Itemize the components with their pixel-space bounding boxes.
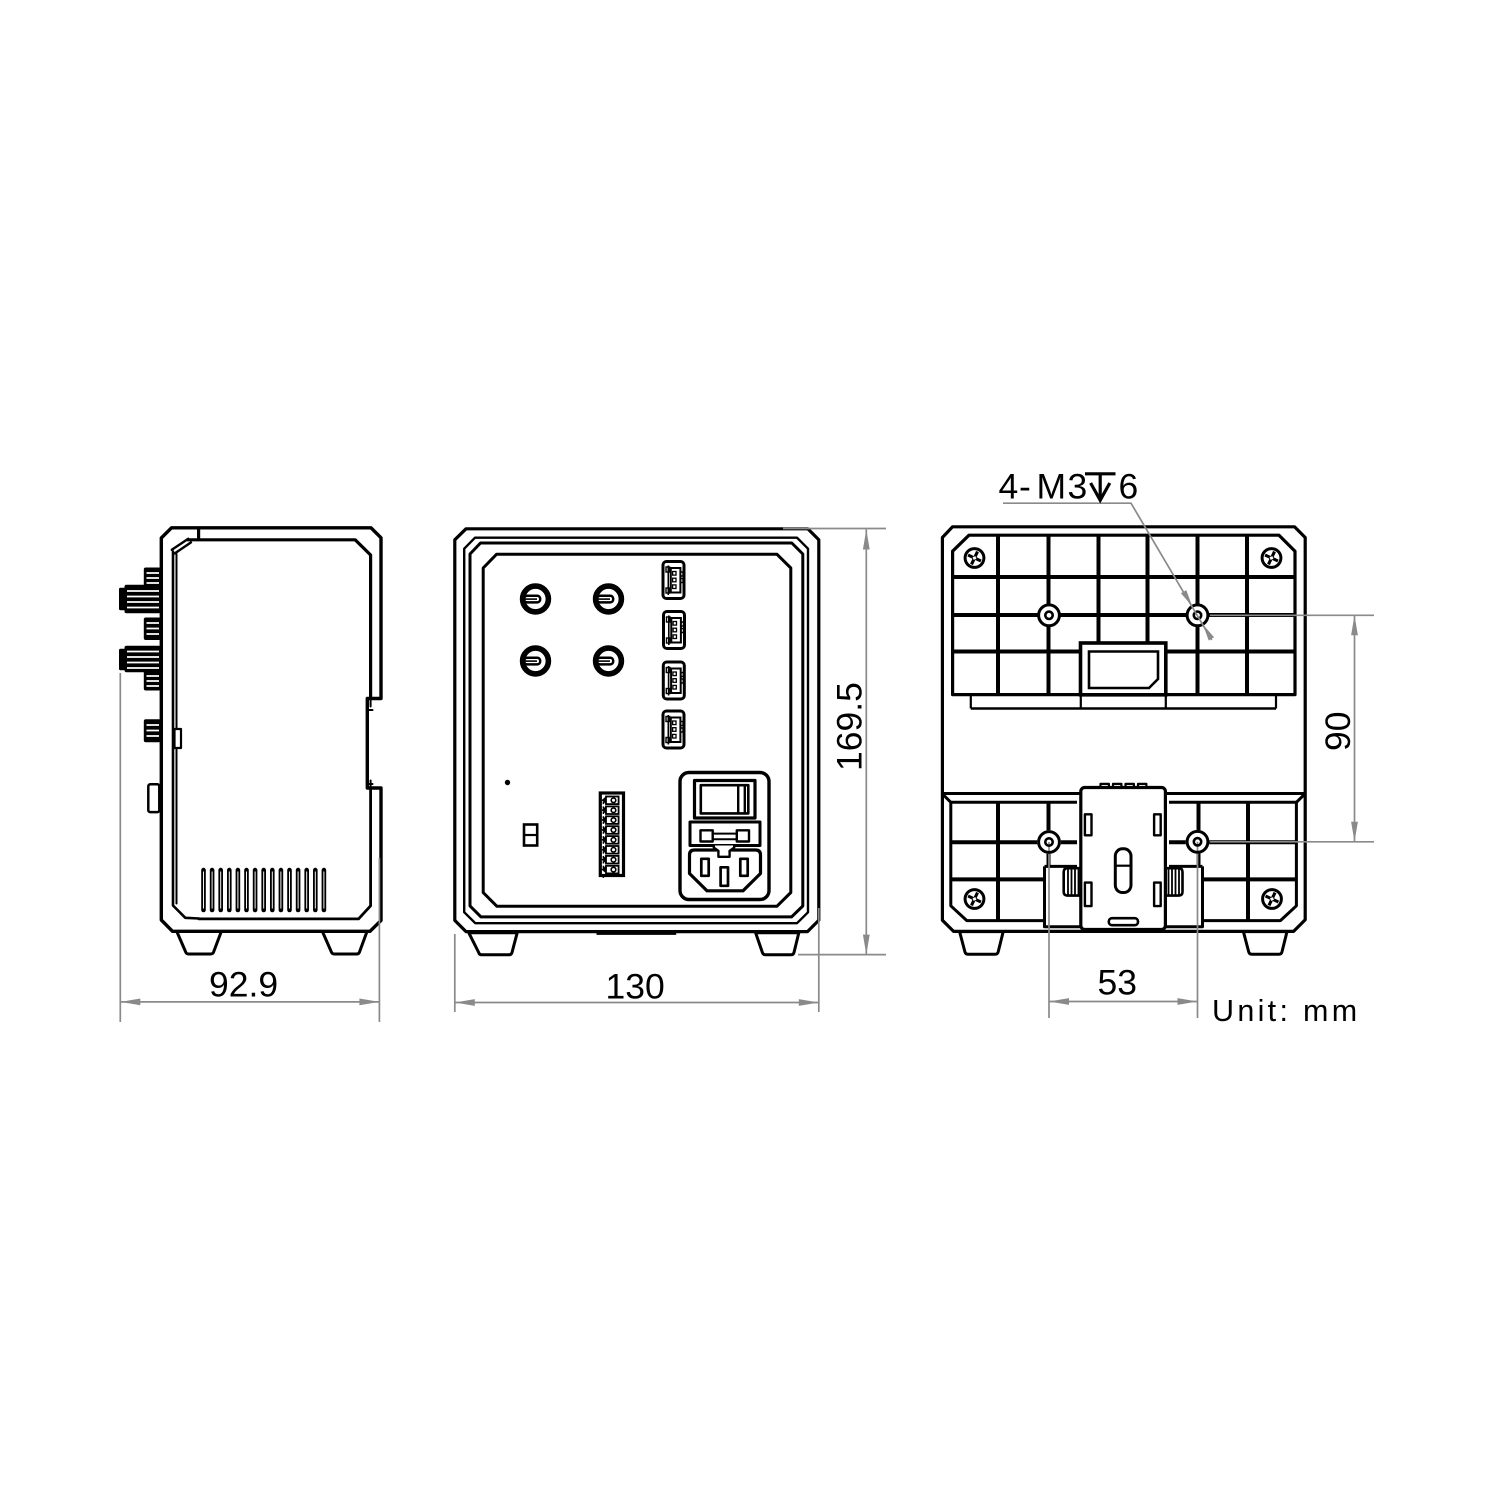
- svg-text:3: 3: [1068, 467, 1088, 507]
- svg-text:4: 4: [999, 467, 1019, 507]
- svg-text:M: M: [1037, 467, 1067, 507]
- svg-text:Unit: mm: Unit: mm: [1212, 994, 1360, 1028]
- svg-text:92.9: 92.9: [209, 965, 278, 1005]
- svg-text:90: 90: [1318, 712, 1358, 752]
- svg-text:-: -: [1019, 467, 1031, 507]
- svg-text:169.5: 169.5: [830, 682, 870, 771]
- svg-text:53: 53: [1098, 963, 1138, 1003]
- svg-text:130: 130: [606, 966, 665, 1006]
- svg-text:6: 6: [1119, 467, 1139, 507]
